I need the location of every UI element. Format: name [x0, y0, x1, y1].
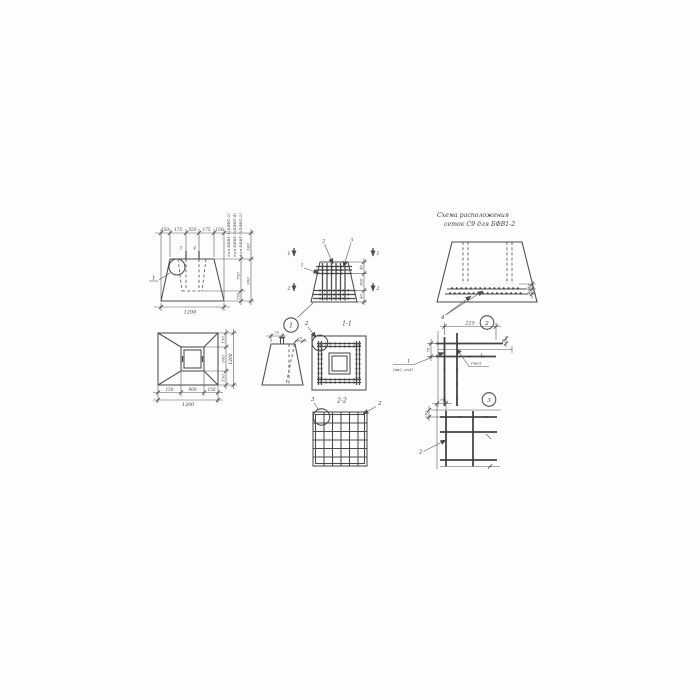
- top-mesh-bars: [316, 267, 352, 274]
- dim-label: 1200: [184, 310, 198, 316]
- bottom-mesh-bars: [313, 291, 356, 299]
- dim-label: 40: [528, 289, 532, 295]
- dim-label: 40: [360, 294, 364, 300]
- dim-label: 175: [174, 227, 182, 232]
- dim-label: 75: [274, 330, 280, 335]
- leader-label: 1: [480, 353, 483, 359]
- leader-note: (пв2): [471, 361, 482, 366]
- note-text: для БФВ1-3(БФВ1-4): [232, 213, 237, 257]
- dim-label: 1200: [182, 402, 194, 408]
- dim-label: 75: [427, 347, 431, 352]
- right-dimensions: 150 900 150 1200: [204, 329, 237, 389]
- block-outline: [311, 262, 357, 302]
- mesh-corner-detail-view: 3 75 50 2: [418, 393, 501, 469]
- dim-label: 50: [502, 338, 506, 343]
- mesh-schema-view: Схема расположения сеток С9 для БФВ1-2 4…: [437, 212, 537, 321]
- pin-left-label: 3: [179, 246, 182, 251]
- dim-label: 750: [236, 272, 241, 280]
- rotated-notes: для БФВ1-1(БФВ1-2) для БФВ1-3(БФВ1-4) дл…: [226, 213, 243, 257]
- mesh-bars: [440, 411, 500, 467]
- dim-label: 75: [439, 398, 444, 403]
- dim-label: 900: [189, 387, 197, 392]
- bottom-dimension: 1200: [154, 303, 230, 316]
- dim-label: 150: [161, 227, 169, 232]
- dim-label: 150: [237, 292, 241, 300]
- section-2-2-view: 3 2-2 2: [311, 397, 382, 466]
- mesh-rows: [445, 288, 528, 294]
- dim-label: 175: [203, 227, 211, 232]
- foundation-block-drawing: 3 4 1 150 175 550 175 150 1200: [0, 0, 700, 700]
- detail-bubble-label: 1: [289, 323, 293, 330]
- leader-label: 3: [311, 397, 315, 403]
- schema-title-line1: Схема расположения: [437, 212, 509, 219]
- section-mark-label: 2: [375, 286, 379, 292]
- cavity-hidden-lines: [178, 259, 206, 291]
- pin-detail-view: 1 75 25: [262, 318, 307, 385]
- drawing-sheet: 3 4 1 150 175 550 175 150 1200: [0, 0, 700, 700]
- top-dimension: 225: [440, 321, 501, 341]
- pin-right-label: 4: [192, 246, 196, 251]
- dim-label: 900: [221, 355, 226, 363]
- reinforcement-view: 1 2 1 2 2 3 1 40 820 40: [286, 238, 379, 318]
- plan-outline: [158, 333, 218, 385]
- dim-label: 300: [246, 243, 251, 251]
- mesh-grid: [313, 412, 367, 466]
- leader-label: 1: [407, 359, 410, 365]
- dim-label: 550: [189, 227, 197, 232]
- dim-label: 225: [464, 321, 475, 327]
- dim-label: 40: [528, 284, 532, 290]
- hidden-slope-line: [286, 344, 295, 385]
- mesh-leader: 4: [440, 291, 483, 321]
- top-dimension-chain: 150 175 550 175 150: [155, 227, 230, 235]
- right-dimension: 50: [502, 336, 509, 347]
- pin-shape: [281, 338, 284, 344]
- note-text: для БФВ1-1(БФВ1-2): [226, 213, 231, 257]
- section-title: 2-2: [336, 398, 347, 405]
- section-mark-label: 2: [286, 286, 290, 292]
- anchor-pins: 3 4: [179, 246, 199, 260]
- top-dimension: 25: [294, 336, 307, 344]
- leader-right: 1 (пв2): [457, 349, 490, 367]
- leader-left: 1 (пв2, сп3): [393, 353, 444, 373]
- block-side-outline: [262, 344, 303, 385]
- dim-label: 150: [221, 374, 226, 382]
- cavity-inner-line: [332, 356, 347, 371]
- detail-bubble-label: 3: [487, 398, 491, 404]
- plan-view: 150 900 150 1200 150 900 150 1200: [153, 329, 237, 408]
- detail-bubble-label: 2: [484, 321, 489, 327]
- top-dimension: 75: [432, 398, 452, 412]
- leader-label: 2: [418, 450, 423, 456]
- cavity-hidden-lines: [463, 242, 512, 284]
- leader-label: 1: [301, 263, 304, 269]
- block-outline: [161, 259, 224, 301]
- perimeter-bars: [317, 341, 361, 385]
- dim-label: 40: [360, 265, 364, 271]
- cavity-inner-wall: [184, 350, 201, 368]
- detail-leader-label: 1: [152, 276, 156, 282]
- detail-leader: [159, 273, 170, 280]
- leader-label: 3: [350, 238, 353, 244]
- top-extension-lines: [161, 229, 224, 299]
- detail-callout-circle: [169, 259, 185, 275]
- leader-label: 2: [377, 401, 382, 407]
- leader-note: (пв2, сп3): [393, 367, 413, 372]
- rebar-bars: [436, 333, 503, 406]
- note-text: для БФВ1-5(БФВ1-2): [238, 213, 243, 257]
- dim-label: 900: [246, 277, 251, 285]
- section-1-1-view: 1-1 2: [304, 321, 366, 391]
- bar-leader: 2: [418, 440, 446, 456]
- elevation-view: 3 4 1 150 175 550 175 150 1200: [149, 213, 254, 316]
- dim-label: 150: [166, 387, 174, 392]
- leader-label: 4: [440, 315, 445, 321]
- dim-label: 820: [360, 278, 364, 286]
- left-dimension: 50: [425, 406, 441, 421]
- dim-label: 150: [216, 227, 224, 232]
- dim-label: 150: [221, 336, 226, 344]
- dim-label: 150: [208, 387, 216, 392]
- dim-label: 1200: [229, 353, 234, 364]
- dim-label: 25: [296, 336, 302, 341]
- corner-detail-view: 2 225 75: [393, 316, 512, 407]
- corner-slope-lines: [158, 333, 218, 385]
- bottom-dimensions: 150 900 150 1200: [153, 372, 223, 408]
- section-mark-label: 1: [376, 251, 379, 257]
- leader-label: 2: [304, 321, 309, 327]
- section-mark-label: 1: [287, 251, 290, 257]
- section-title: 1-1: [342, 321, 352, 328]
- leader-label: 2: [321, 239, 325, 245]
- schema-title-line2: сеток С9 для БФВ1-2: [444, 221, 515, 228]
